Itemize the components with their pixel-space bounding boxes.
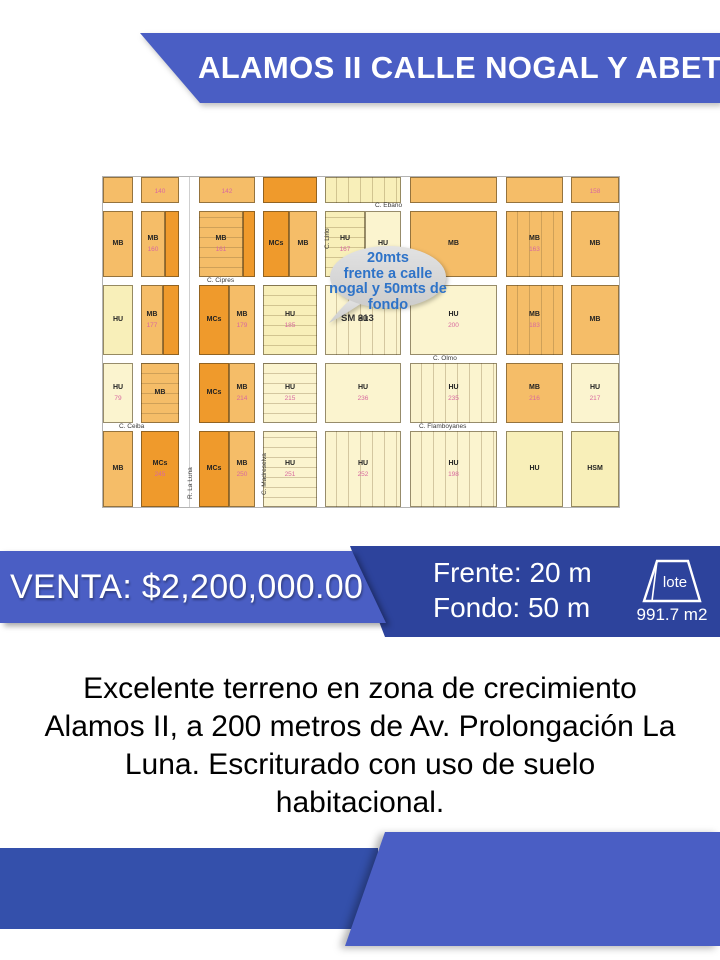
- bottom-left-bar: [0, 848, 378, 929]
- map-block-lot-number: 215: [285, 395, 296, 403]
- bubble-line: fondo: [321, 298, 455, 314]
- header-banner: ALAMOS II CALLE NOGAL Y ABETO: [0, 33, 720, 103]
- map-block-zone-label: MB: [113, 240, 124, 248]
- map-block-lot-number: 163: [529, 246, 540, 254]
- map-block: HU217: [571, 363, 619, 423]
- map-block-zone-label: MB: [529, 384, 540, 392]
- street-name-label: C. Olmo: [433, 355, 457, 362]
- map-block-zone-label: HU: [590, 384, 600, 392]
- map-block: HU: [506, 431, 563, 507]
- street-name-label: C. Madreselva: [261, 453, 268, 495]
- map-block: MB214: [229, 363, 255, 423]
- map-block: [165, 211, 179, 277]
- fondo-value: Fondo: 50 m: [433, 590, 592, 625]
- map-block: [263, 177, 317, 203]
- map-block-zone-label: HU: [285, 460, 295, 468]
- map-block: MCs: [199, 285, 229, 355]
- map-block-lot-number: 79: [114, 395, 121, 403]
- lot-area-value: 991.7 m2: [632, 605, 712, 625]
- street-name-label: C. Ebano: [375, 202, 402, 209]
- map-block: HU235: [410, 363, 497, 423]
- map-block: [243, 211, 255, 277]
- map-block-zone-label: MB: [237, 460, 248, 468]
- price-ribbon-shape: VENTA: $2,200,000.00: [0, 551, 386, 623]
- lot-dimensions: Frente: 20 m Fondo: 50 m: [433, 555, 592, 625]
- map-block-zone-label: HU: [358, 460, 368, 468]
- map-block-zone-label: HU: [340, 235, 350, 243]
- map-block: HSM: [571, 431, 619, 507]
- map-block-zone-label: MB: [216, 235, 227, 243]
- map-block-zone-label: MB: [529, 311, 540, 319]
- map-block-zone-label: HU: [285, 311, 295, 319]
- map-block-zone-label: MB: [148, 235, 159, 243]
- map-block: 140: [141, 177, 179, 203]
- map-block-zone-label: HU: [285, 384, 295, 392]
- map-block-zone-label: HU: [529, 465, 539, 473]
- map-block-lot-number: 179: [237, 322, 248, 330]
- map-block: HU: [103, 285, 133, 355]
- map-block-zone-label: MB: [147, 311, 158, 319]
- map-block: [103, 177, 133, 203]
- map-block-zone-label: MB: [237, 384, 248, 392]
- map-block-lot-number: 161: [216, 246, 227, 254]
- map-block-zone-label: MCs: [269, 240, 284, 248]
- map-block-zone-label: MB: [590, 316, 601, 324]
- map-block-lot-number: 158: [590, 188, 601, 196]
- map-block: 142: [199, 177, 255, 203]
- header-banner-shape: ALAMOS II CALLE NOGAL Y ABETO: [0, 33, 720, 103]
- map-block-zone-label: MB: [298, 240, 309, 248]
- map-block-zone-label: MB: [237, 311, 248, 319]
- details-panel: Frente: 20 m Fondo: 50 m lote 991.7 m2: [338, 546, 720, 637]
- lot-trapezoid-icon: lote: [642, 559, 702, 603]
- map-block: MB: [103, 431, 133, 507]
- street-name-label: C. Ceiba: [119, 423, 144, 430]
- map-block-zone-label: HU: [448, 384, 458, 392]
- map-block-lot-number: 216: [529, 395, 540, 403]
- map-block-zone-label: MB: [529, 235, 540, 243]
- map-block-zone-label: MB: [113, 465, 124, 473]
- map-block: MB: [571, 285, 619, 355]
- map-block-zone-label: HU: [448, 460, 458, 468]
- description-line: Excelente terreno en zona de crecimiento: [0, 670, 720, 708]
- price-ribbon: VENTA: $2,200,000.00: [0, 551, 386, 623]
- map-block: MCs: [199, 431, 229, 507]
- map-block-lot-number: 183: [529, 322, 540, 330]
- bottom-right-ribbon: [325, 832, 720, 946]
- map-block-zone-label: MB: [448, 240, 459, 248]
- map-block: MB177: [141, 285, 163, 355]
- map-block-lot-number: 185: [285, 322, 296, 330]
- description-line: habitacional.: [0, 784, 720, 822]
- map: HSMHUHU198HU252HU251MB250MCsMCs245MBHU21…: [102, 176, 620, 508]
- speech-bubble-text: 20mts frente a calle nogal y 50mts de fo…: [321, 251, 455, 313]
- map-block-zone-label: HU: [113, 384, 123, 392]
- map-block-lot-number: 235: [448, 395, 459, 403]
- bubble-line: frente a calle: [321, 267, 455, 283]
- map-block-zone-label: HU: [358, 384, 368, 392]
- map-block-lot-number: 245: [155, 471, 166, 479]
- map-block: [410, 177, 497, 203]
- map-block: HU215: [263, 363, 317, 423]
- street-name-label: C. Flamboyanes: [419, 423, 466, 430]
- bubble-line: 20mts: [321, 251, 455, 267]
- flyer-page: ALAMOS II CALLE NOGAL Y ABETO HSMHUHU198…: [0, 0, 720, 960]
- description-line: Luna. Escriturado con uso de suelo: [0, 746, 720, 784]
- page-title: ALAMOS II CALLE NOGAL Y ABETO: [0, 50, 720, 86]
- map-block-zone-label: HU: [113, 316, 123, 324]
- map-block-lot-number: 214: [237, 395, 248, 403]
- bubble-line: nogal y 50mts de: [321, 282, 455, 298]
- lot-area-block: lote 991.7 m2: [632, 559, 712, 625]
- map-block: HU252: [325, 431, 401, 507]
- map-block-zone-label: MB: [590, 240, 601, 248]
- price-label: VENTA: $2,200,000.00: [0, 568, 363, 607]
- map-block-lot-number: 251: [285, 471, 296, 479]
- map-block-lot-number: 250: [237, 471, 248, 479]
- avenue-center-line: [189, 177, 190, 507]
- map-block: HU236: [325, 363, 401, 423]
- description: Excelente terreno en zona de crecimiento…: [0, 670, 720, 822]
- description-line: Alamos II, a 200 metros de Av. Prolongac…: [0, 708, 720, 746]
- lot-icon-label: lote: [663, 574, 687, 591]
- map-block: MCs: [199, 363, 229, 423]
- map-block: MB216: [506, 363, 563, 423]
- map-block: HU251: [263, 431, 317, 507]
- map-block: MB: [103, 211, 133, 277]
- map-block: MB250: [229, 431, 255, 507]
- street-name-label: R. La Luna: [187, 467, 194, 499]
- bottom-right-ribbon-shape: [325, 832, 720, 946]
- map-block-lot-number: 198: [448, 471, 459, 479]
- map-block: MB: [141, 363, 179, 423]
- map-block-lot-number: 236: [358, 395, 369, 403]
- map-block-lot-number: 140: [155, 188, 166, 196]
- map-block-zone-label: MCs: [153, 460, 168, 468]
- map-block: MB163: [506, 211, 563, 277]
- map-block: MCs245: [141, 431, 179, 507]
- map-block: MB160: [141, 211, 165, 277]
- map-block: [163, 285, 179, 355]
- map-block-lot-number: 200: [448, 322, 459, 330]
- map-block: MB179: [229, 285, 255, 355]
- map-block-zone-label: HSM: [587, 465, 603, 473]
- map-block-lot-number: 217: [590, 395, 601, 403]
- map-block: MB: [289, 211, 317, 277]
- map-block-zone-label: MB: [155, 389, 166, 397]
- map-block: HU79: [103, 363, 133, 423]
- map-block: MB: [571, 211, 619, 277]
- map-block: [506, 177, 563, 203]
- map-block: 158: [571, 177, 619, 203]
- frente-value: Frente: 20 m: [433, 555, 592, 590]
- street-name-label: C. Cipres: [207, 277, 234, 284]
- map-block-lot-number: 252: [358, 471, 369, 479]
- map-block: MCs: [263, 211, 289, 277]
- map-block: HU185: [263, 285, 317, 355]
- map-block: MB161: [199, 211, 243, 277]
- map-block-zone-label: MCs: [207, 465, 222, 473]
- map-block: [325, 177, 401, 203]
- map-block-lot-number: 160: [148, 246, 159, 254]
- map-block: HU198: [410, 431, 497, 507]
- map-block: MB183: [506, 285, 563, 355]
- map-block-lot-number: 177: [147, 322, 158, 330]
- map-block-zone-label: MCs: [207, 389, 222, 397]
- map-block-lot-number: 142: [222, 188, 233, 196]
- map-block-zone-label: MCs: [207, 316, 222, 324]
